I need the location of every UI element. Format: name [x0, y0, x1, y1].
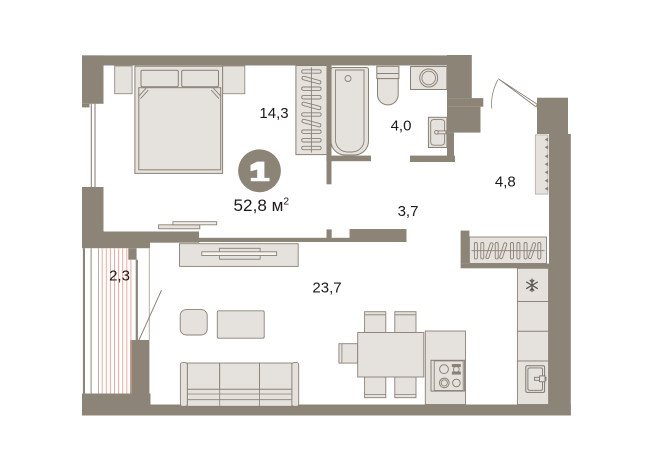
svg-text:2,3: 2,3 — [109, 267, 130, 284]
svg-text:3,7: 3,7 — [398, 203, 419, 220]
svg-text:23,7: 23,7 — [312, 279, 341, 296]
svg-text:4,0: 4,0 — [391, 118, 412, 135]
svg-text:4,8: 4,8 — [495, 173, 516, 190]
svg-text:52,8 м2: 52,8 м2 — [234, 196, 290, 215]
svg-text:14,3: 14,3 — [259, 105, 288, 122]
